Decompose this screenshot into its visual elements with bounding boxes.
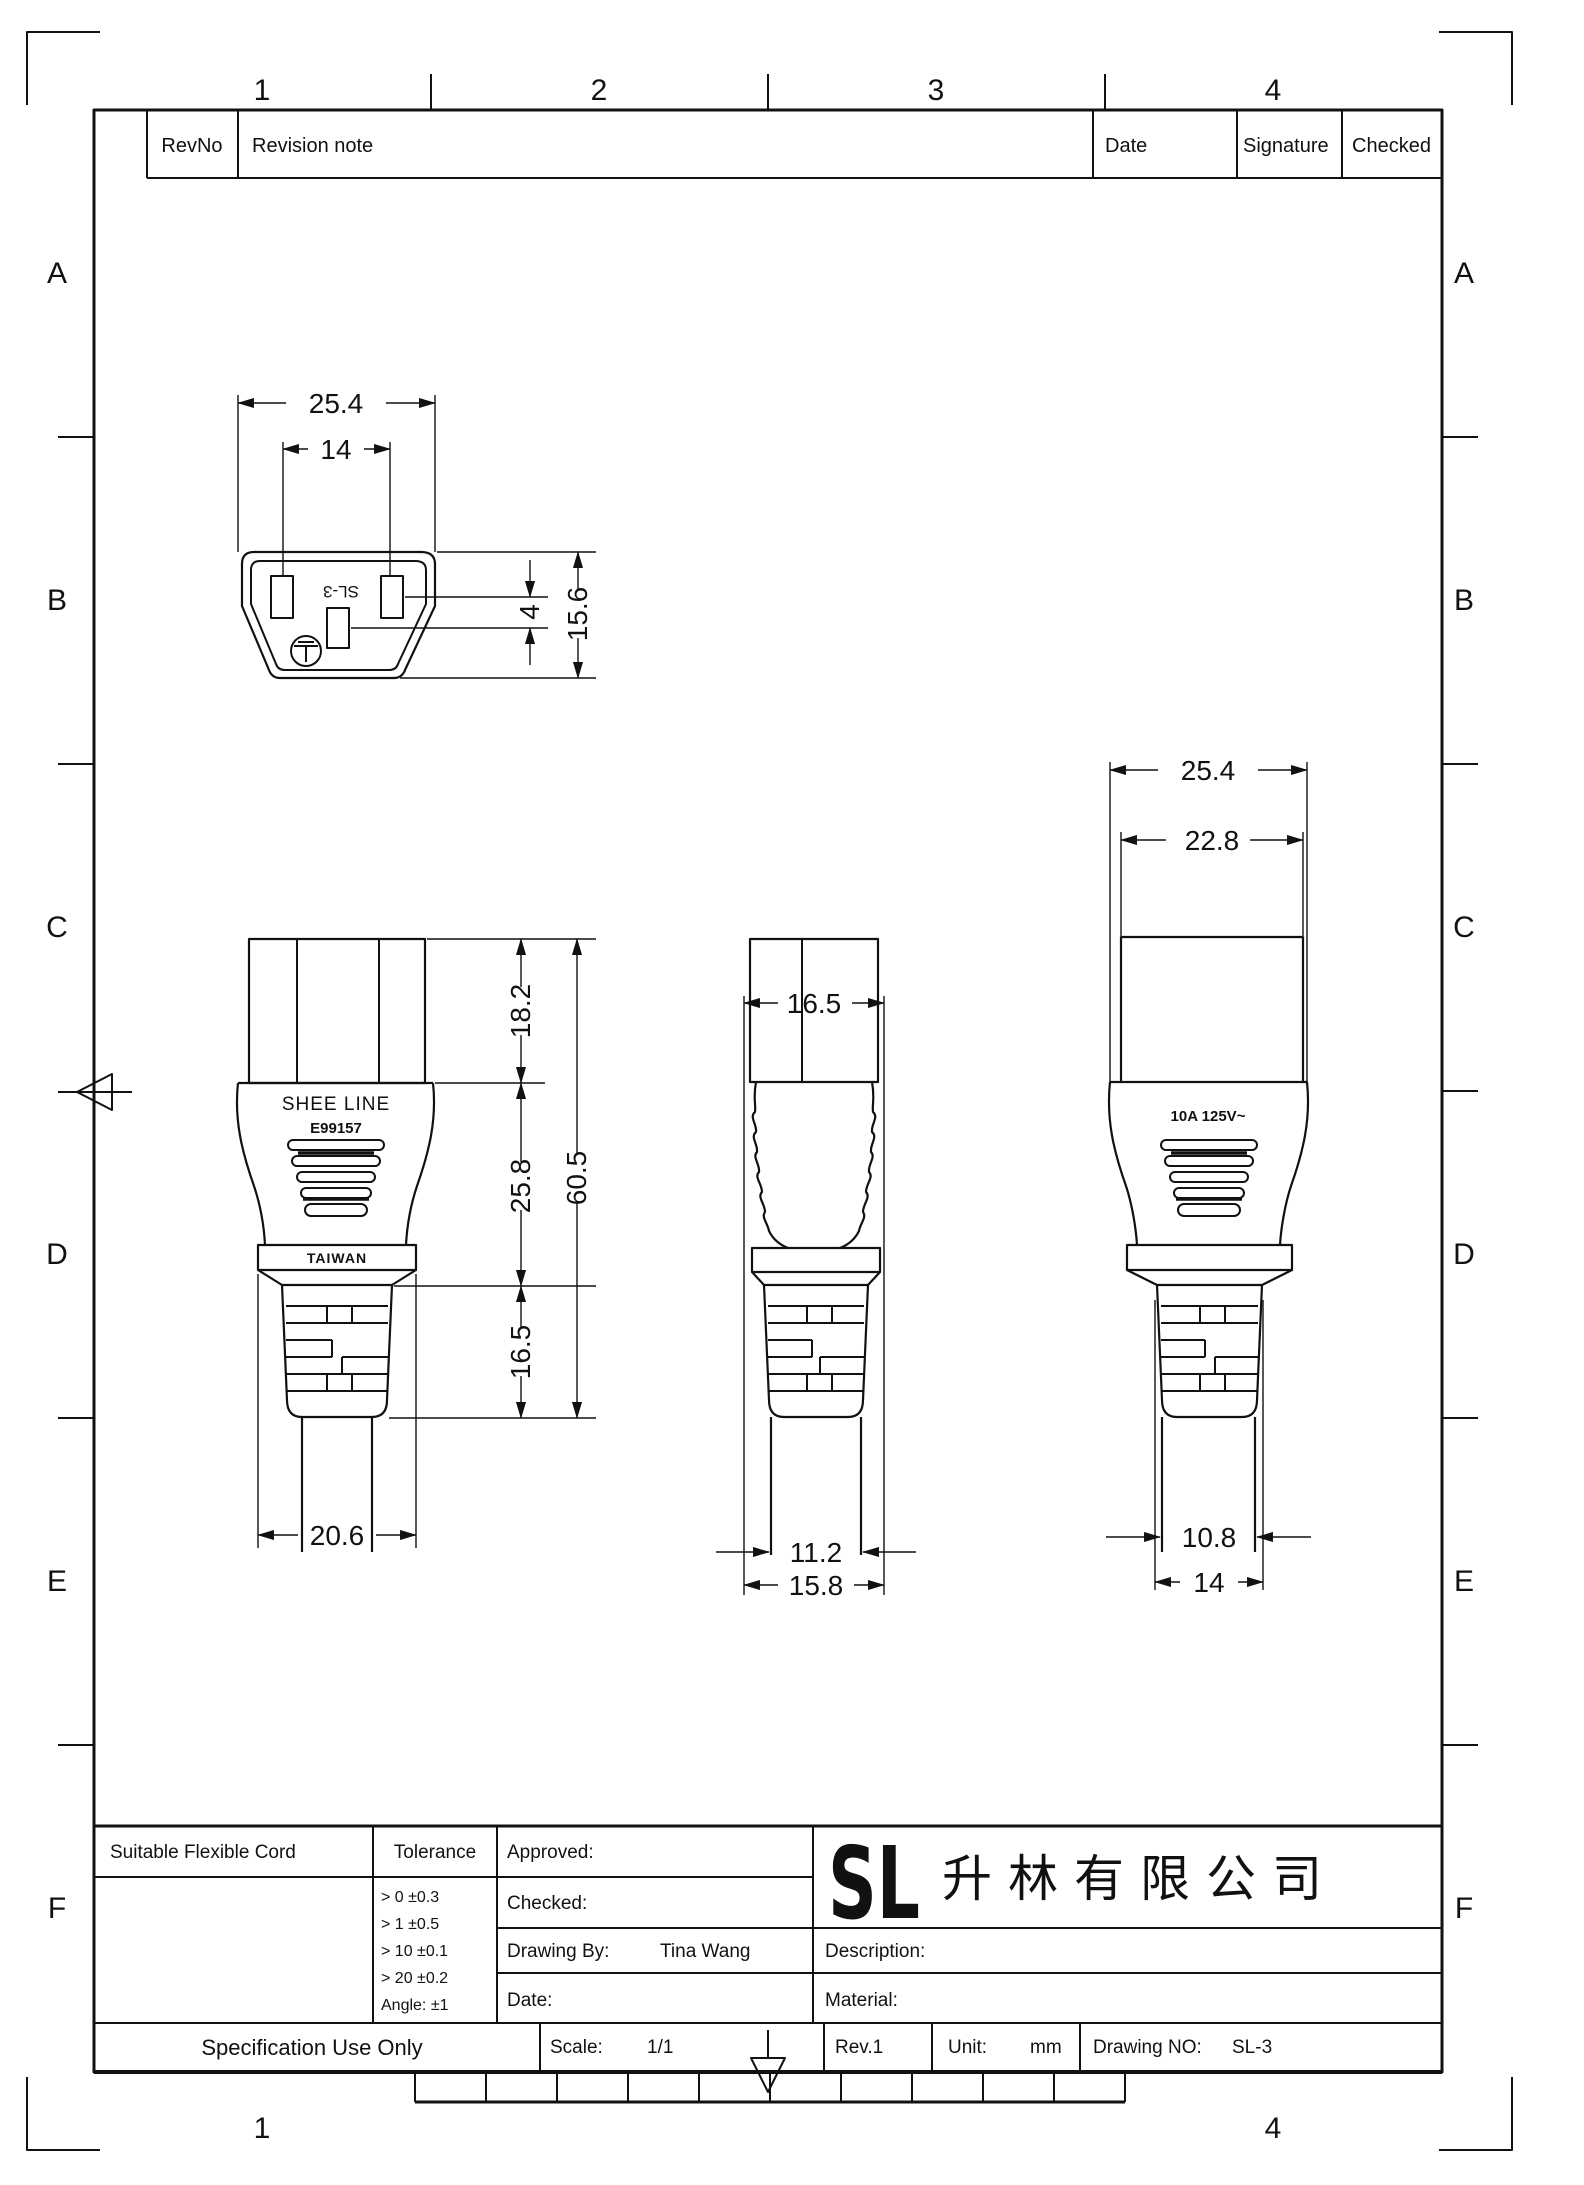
drawing-no-value: SL-3: [1232, 2037, 1272, 2058]
front-head: [249, 939, 425, 1083]
pin-slot-right: [381, 576, 403, 618]
unit-value: mm: [1030, 2037, 1062, 2058]
pin-slot-left: [271, 576, 293, 618]
checked-label: Checked:: [507, 1893, 587, 1914]
side-strain-relief: [764, 1285, 868, 1417]
title-block-footer: Specification Use Only Scale: 1/1 Rev.1 …: [201, 2035, 1272, 2060]
corner-bracket-top-right: [1439, 32, 1512, 105]
side-relief-slots: [768, 1306, 864, 1391]
svg-text:25.8: 25.8: [505, 1159, 536, 1214]
material-label: Material:: [825, 1990, 898, 2011]
rear-relief-slots: [1161, 1306, 1258, 1391]
zone-ticks: [58, 74, 1478, 1745]
zone-col-2-top: 2: [591, 74, 608, 107]
dim-rear-cable: 10.8: [1106, 1522, 1311, 1553]
title-block: Suitable Flexible Cord Tolerance > 0 ±0.…: [94, 1825, 1442, 2102]
zone-row-e-right: E: [1454, 1565, 1474, 1598]
side-body: [753, 1082, 876, 1248]
rear-rib-stack: [1161, 1140, 1257, 1216]
svg-text:> 20 ±0.2: > 20 ±0.2: [381, 1970, 448, 1987]
rear-rating-text: 10A 125V~: [1171, 1108, 1246, 1125]
svg-text:4: 4: [514, 604, 545, 620]
zone-row-b-right: B: [1454, 584, 1474, 617]
front-brand-text: SHEE LINE: [282, 1094, 390, 1115]
front-origin-band: TAIWAN: [258, 1245, 416, 1285]
svg-text:14: 14: [1193, 1567, 1224, 1598]
rear-head: [1110, 762, 1307, 1082]
zone-row-b-left: B: [47, 584, 67, 617]
drawing-by-value: Tina Wang: [660, 1941, 750, 1962]
front-rib-stack: [288, 1140, 384, 1216]
dim-side-cable: 11.2: [716, 1537, 916, 1568]
dim-rear-inner: 22.8: [1121, 825, 1303, 937]
corner-bracket-bottom-right: [1439, 2077, 1512, 2150]
svg-text:> 0 ±0.3: > 0 ±0.3: [381, 1889, 439, 1906]
zone-row-d-right: D: [1453, 1238, 1475, 1271]
svg-text:16.5: 16.5: [505, 1325, 536, 1380]
dim-rear-relief: 14: [1155, 1300, 1263, 1598]
zone-row-f-left: F: [48, 1892, 66, 1925]
front-relief-slots: [286, 1306, 388, 1391]
dim-face-height: 15.6: [400, 552, 596, 678]
svg-text:15.8: 15.8: [789, 1570, 844, 1601]
rear-band: [1127, 1245, 1292, 1285]
svg-text:22.8: 22.8: [1185, 825, 1240, 856]
front-cert-text: E99157: [310, 1120, 362, 1137]
svg-text:10.8: 10.8: [1182, 1522, 1237, 1553]
engineering-drawing: 1 2 3 4 1 4 A B C D E F A B C D E F RevN…: [0, 0, 1584, 2180]
svg-text:16.5: 16.5: [787, 988, 842, 1019]
front-origin-text: TAIWAN: [307, 1250, 367, 1266]
revision-header-revno: RevNo: [161, 135, 222, 157]
svg-text:20.6: 20.6: [310, 1520, 365, 1551]
zone-col-1-top: 1: [254, 74, 271, 107]
svg-text:60.5: 60.5: [561, 1151, 592, 1206]
company-logo: SL 升林有限公司: [828, 1825, 1338, 1942]
drawing-by-label: Drawing By:: [507, 1941, 609, 1962]
svg-text:11.2: 11.2: [790, 1537, 842, 1568]
drawing-sheet: 1 2 3 4 1 4 A B C D E F A B C D E F RevN…: [0, 0, 1584, 2180]
svg-text:25.4: 25.4: [1181, 755, 1236, 786]
scale-value: 1/1: [647, 2037, 673, 2058]
svg-text:25.4: 25.4: [309, 388, 364, 419]
zone-row-a-right: A: [1454, 257, 1474, 290]
zone-col-4-top: 4: [1265, 74, 1282, 107]
face-model-marking: SL-3: [323, 582, 359, 601]
svg-text:> 10 ±0.1: > 10 ±0.1: [381, 1943, 448, 1960]
revision-header-note: Revision note: [252, 135, 373, 157]
tolerance-values: > 0 ±0.3 > 1 ±0.5 > 10 ±0.1 > 20 ±0.2 An…: [381, 1889, 449, 2014]
pin-slot-center: [327, 608, 349, 648]
svg-text:18.2: 18.2: [505, 984, 536, 1039]
dim-front-band-width: 20.6: [258, 1274, 416, 1551]
dim-rear-outer: 25.4: [1110, 755, 1307, 786]
zone-col-4-bottom: 4: [1265, 2112, 1282, 2145]
revision-header-date: Date: [1105, 135, 1147, 157]
unit-label: Unit:: [948, 2037, 987, 2058]
logo-sl-text: SL: [828, 1825, 920, 1942]
dim-pin-spacing: 14: [283, 434, 390, 576]
zone-row-c-right: C: [1453, 911, 1475, 944]
zone-row-c-left: C: [46, 911, 68, 944]
scale-strip: [415, 2072, 1125, 2102]
side-band: [752, 1248, 880, 1285]
side-view: 16.5 11.2 15.8: [716, 939, 916, 1601]
corner-bracket-bottom-left: [27, 2077, 100, 2150]
dim-face-width: 25.4: [238, 388, 435, 552]
face-view: SL-3 25.4 14 4: [238, 388, 596, 678]
center-mark-bottom: [751, 2030, 785, 2092]
svg-text:Angle: ±1: Angle: ±1: [381, 1997, 449, 2014]
zone-row-d-left: D: [46, 1238, 68, 1271]
zone-row-e-left: E: [47, 1565, 67, 1598]
face-inner-outline: [251, 561, 426, 670]
description-label: Description:: [825, 1941, 925, 1962]
corner-bracket-top-left: [27, 32, 100, 105]
rev-label: Rev.1: [835, 2037, 883, 2058]
zone-row-a-left: A: [47, 257, 67, 290]
drawing-no-label: Drawing NO:: [1093, 2037, 1202, 2058]
scale-label: Scale:: [550, 2037, 603, 2058]
rear-body: [1109, 1082, 1308, 1245]
logo-company-name: 升林有限公司: [942, 1850, 1338, 1908]
date-label: Date:: [507, 1990, 552, 2011]
rear-view: 10A 125V~: [1106, 755, 1311, 1598]
front-view: SHEE LINE E99157 TAIWAN: [237, 939, 596, 1552]
sheet-frame: 1 2 3 4 1 4 A B C D E F A B C D E F: [27, 32, 1512, 2150]
border-frame: [94, 110, 1442, 2072]
svg-text:> 1 ±0.5: > 1 ±0.5: [381, 1916, 439, 1933]
approved-label: Approved:: [507, 1842, 594, 1863]
revision-table: RevNo Revision note Date Signature Check…: [147, 110, 1442, 178]
suitable-cord-label: Suitable Flexible Cord: [110, 1842, 296, 1863]
front-strain-relief: [282, 1285, 392, 1417]
tolerance-label: Tolerance: [394, 1842, 476, 1863]
svg-text:14: 14: [320, 434, 351, 465]
zone-row-f-right: F: [1455, 1892, 1473, 1925]
dim-side-relief: 15.8: [744, 1570, 884, 1601]
zone-col-3-top: 3: [928, 74, 945, 107]
revision-header-signature: Signature: [1243, 135, 1329, 157]
rear-strain-relief: [1157, 1285, 1262, 1417]
screw-earth-icon: [291, 636, 321, 666]
zone-col-1-bottom: 1: [254, 2112, 271, 2145]
spec-use-only-label: Specification Use Only: [201, 2035, 422, 2060]
svg-text:15.6: 15.6: [562, 587, 593, 642]
revision-header-checked: Checked: [1352, 135, 1431, 157]
side-cord-lines: [771, 1417, 861, 1555]
